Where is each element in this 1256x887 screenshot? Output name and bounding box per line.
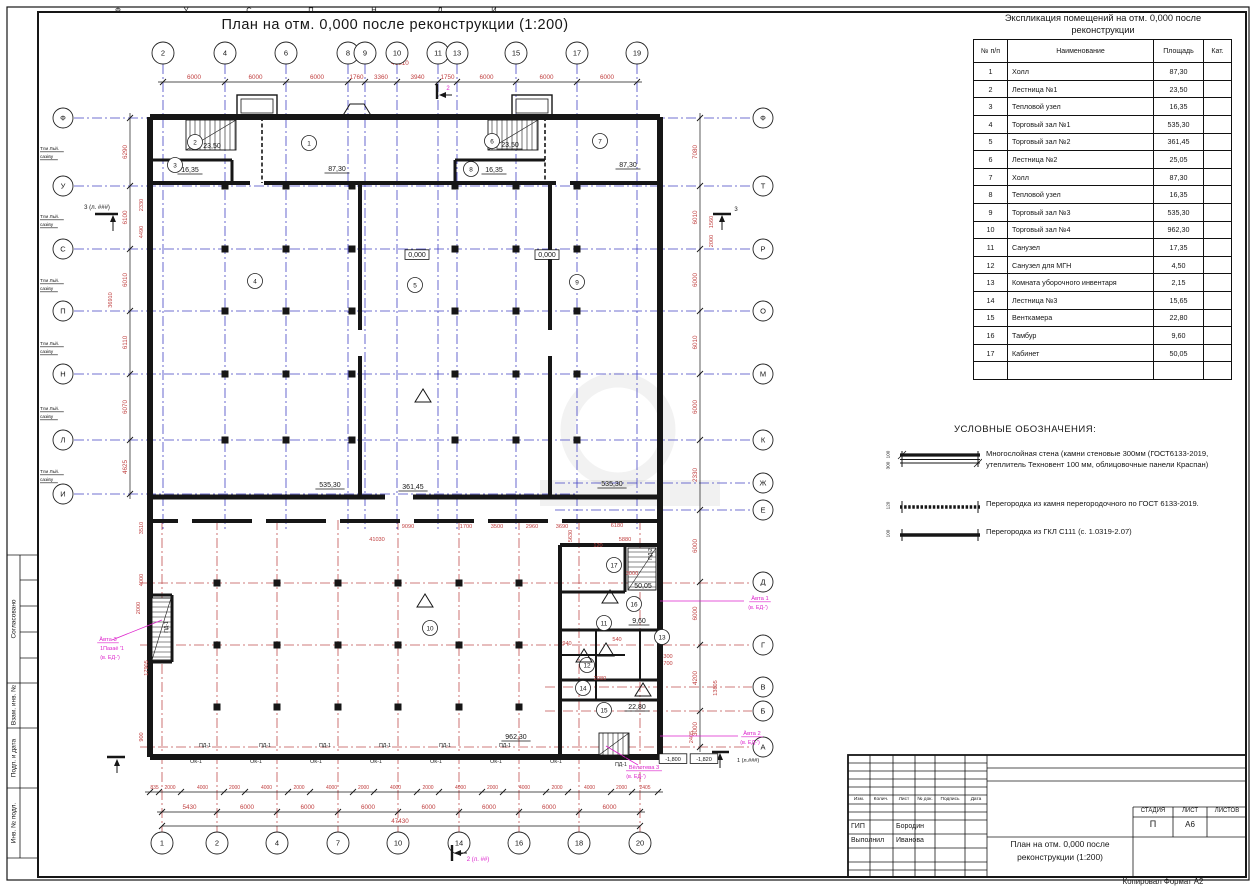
svg-text:940: 940 bbox=[562, 641, 571, 647]
svg-text:ПД-1: ПД-1 bbox=[439, 743, 451, 749]
svg-text:ПД-1: ПД-1 bbox=[319, 743, 331, 749]
tb-col-doc: № док. bbox=[917, 797, 932, 802]
explication-row bbox=[974, 362, 1232, 380]
wall-dim-label: 300 bbox=[885, 462, 890, 470]
tb-col-list: Лист bbox=[899, 797, 909, 802]
explication-cell: 2,15 bbox=[1154, 274, 1204, 292]
svg-text:ПД-1: ПД-1 bbox=[259, 743, 271, 749]
svg-text:6110: 6110 bbox=[122, 335, 129, 349]
svg-text:11: 11 bbox=[601, 620, 608, 627]
svg-text:Д: Д bbox=[760, 578, 765, 587]
explication-cell: 4,50 bbox=[1154, 256, 1204, 274]
svg-text:Е: Е bbox=[760, 506, 765, 515]
svg-text:Ф: Ф bbox=[115, 6, 121, 15]
svg-text:4625: 4625 bbox=[122, 460, 129, 475]
explication-cell bbox=[1204, 98, 1232, 116]
svg-text:сазiву: сазiву bbox=[40, 154, 54, 160]
svg-text:4000: 4000 bbox=[455, 785, 466, 791]
svg-text:Тли Льй.: Тли Льй. bbox=[40, 213, 59, 220]
svg-text:4000: 4000 bbox=[390, 785, 401, 791]
svg-text:15: 15 bbox=[512, 49, 520, 58]
explication-cell: 87,30 bbox=[1154, 168, 1204, 186]
svg-text:И: И bbox=[60, 490, 65, 499]
explication-cell bbox=[1204, 362, 1232, 380]
svg-text:6000: 6000 bbox=[482, 804, 497, 811]
svg-text:4490: 4490 bbox=[139, 226, 145, 238]
explication-title: Экспликация помещений на отм. 0,000 посл… bbox=[973, 13, 1233, 36]
tb-role-executor: Выполнил bbox=[851, 837, 884, 844]
svg-text:4200: 4200 bbox=[692, 671, 699, 686]
tb-sheet-value: А6 bbox=[1185, 820, 1195, 829]
svg-text:2: 2 bbox=[161, 49, 165, 58]
explication-cell: 9,60 bbox=[1154, 327, 1204, 345]
svg-text:1Пазаё '1: 1Пазаё '1 bbox=[100, 646, 124, 652]
svg-text:6010: 6010 bbox=[692, 335, 699, 350]
svg-text:3: 3 bbox=[734, 207, 738, 213]
explication-cell: 5 bbox=[974, 133, 1008, 151]
svg-text:10: 10 bbox=[426, 625, 434, 632]
svg-text:16,35: 16,35 bbox=[181, 167, 199, 174]
explication-cell: 25,05 bbox=[1154, 151, 1204, 169]
tb-sheets-label: ЛИСТОВ bbox=[1215, 808, 1239, 814]
svg-text:300: 300 bbox=[663, 654, 672, 660]
explication-cell: 6 bbox=[974, 151, 1008, 169]
partition-dim-label: 100 bbox=[885, 530, 890, 538]
svg-text:16: 16 bbox=[630, 601, 638, 608]
page-title: План на отм. 0,000 после реконструкции (… bbox=[180, 17, 610, 33]
svg-text:6070: 6070 bbox=[122, 400, 129, 415]
copy-note: Копировал Формат А2 bbox=[1086, 877, 1240, 886]
legend-title: УСЛОВНЫЕ ОБОЗНАЧЕНИЯ: bbox=[954, 424, 1096, 435]
svg-text:900: 900 bbox=[139, 732, 145, 741]
svg-text:6000: 6000 bbox=[600, 74, 615, 81]
explication-cell: 4 bbox=[974, 116, 1008, 134]
svg-text:сазiву: сазiву bbox=[40, 222, 54, 228]
explication-cell: Холл bbox=[1008, 168, 1154, 186]
explication-row: 13Комната уборочного инвентаря2,15 bbox=[974, 274, 1232, 292]
svg-text:А: А bbox=[760, 743, 765, 752]
svg-text:2: 2 bbox=[215, 839, 219, 848]
svg-text:2000: 2000 bbox=[358, 785, 369, 791]
explication-cell: 535,30 bbox=[1154, 116, 1204, 134]
svg-text:9,60: 9,60 bbox=[632, 618, 646, 625]
svg-text:19: 19 bbox=[633, 49, 641, 58]
svg-text:(в. ЕД-'): (в. ЕД-') bbox=[626, 774, 646, 780]
explication-row: 12Санузел для МГН4,50 bbox=[974, 256, 1232, 274]
svg-text:6000: 6000 bbox=[300, 804, 315, 811]
svg-text:Ф: Ф bbox=[60, 114, 66, 123]
svg-text:(в. ЕД-'): (в. ЕД-') bbox=[100, 655, 120, 661]
drawing-sheet: 6000600060001760336039401750600060006000… bbox=[0, 0, 1256, 887]
gkl-partition-symbol bbox=[896, 528, 982, 544]
svg-text:сазiву: сазiву bbox=[40, 414, 54, 420]
explication-cell: 17,35 bbox=[1154, 239, 1204, 257]
svg-text:4000: 4000 bbox=[519, 785, 530, 791]
explication-cell: Тамбур bbox=[1008, 327, 1154, 345]
explication-cell: 962,30 bbox=[1154, 221, 1204, 239]
explication-cell: 535,30 bbox=[1154, 203, 1204, 221]
svg-text:1: 1 bbox=[307, 140, 311, 147]
svg-text:4: 4 bbox=[223, 49, 227, 58]
explication-row: 8Тепловой узел16,35 bbox=[974, 186, 1232, 204]
svg-text:535,30: 535,30 bbox=[601, 481, 623, 488]
svg-text:Л: Л bbox=[61, 436, 66, 445]
svg-text:0,000: 0,000 bbox=[538, 252, 556, 259]
svg-text:2: 2 bbox=[446, 86, 450, 92]
svg-text:3690: 3690 bbox=[556, 524, 568, 530]
explication-cell bbox=[1204, 80, 1232, 98]
svg-text:6010: 6010 bbox=[692, 210, 699, 225]
explication-cell: 16 bbox=[974, 327, 1008, 345]
svg-text:5880: 5880 bbox=[619, 537, 631, 543]
explication-cell: Торговый зал №2 bbox=[1008, 133, 1154, 151]
explication-cell bbox=[1204, 168, 1232, 186]
sidebar-item-vzam-inv: Взам. инв. № bbox=[11, 685, 18, 725]
explication-cell: Лестница №3 bbox=[1008, 291, 1154, 309]
svg-text:11: 11 bbox=[434, 49, 442, 58]
explication-row: 6Лестница №225,05 bbox=[974, 151, 1232, 169]
explication-cell: Лестница №1 bbox=[1008, 80, 1154, 98]
svg-text:ПД-1: ПД-1 bbox=[164, 621, 170, 633]
svg-text:6000: 6000 bbox=[542, 804, 557, 811]
svg-text:4000: 4000 bbox=[197, 785, 208, 791]
svg-text:ОК-2: ОК-2 bbox=[148, 556, 154, 567]
sidebar-item-inv-podl: Инв. № подл. bbox=[11, 803, 18, 844]
explication-cell: Санузел bbox=[1008, 239, 1154, 257]
svg-text:535,30: 535,30 bbox=[319, 482, 341, 489]
explication-cell bbox=[1204, 203, 1232, 221]
svg-text:ПД-1: ПД-1 bbox=[199, 743, 211, 749]
partition-dim-label: 120 bbox=[885, 502, 890, 510]
explication-row: 5Торговый зал №2361,45 bbox=[974, 133, 1232, 151]
explication-cell: 7 bbox=[974, 168, 1008, 186]
svg-text:М: М bbox=[760, 370, 766, 379]
explication-cell: Кабинет bbox=[1008, 344, 1154, 362]
explication-cell bbox=[1204, 239, 1232, 257]
svg-text:Р: Р bbox=[760, 245, 765, 254]
svg-text:Тли Льй.: Тли Льй. bbox=[40, 405, 59, 412]
svg-text:ПД-1: ПД-1 bbox=[615, 762, 627, 768]
svg-text:Тли Льй.: Тли Льй. bbox=[40, 468, 59, 475]
svg-text:10: 10 bbox=[393, 49, 401, 58]
svg-text:540: 540 bbox=[612, 637, 621, 643]
svg-text:6000: 6000 bbox=[187, 74, 202, 81]
explication-cell bbox=[1204, 221, 1232, 239]
svg-text:Т: Т bbox=[761, 182, 766, 191]
svg-text:сазiву: сазiву bbox=[40, 349, 54, 355]
svg-text:18: 18 bbox=[575, 839, 583, 848]
svg-text:835: 835 bbox=[150, 785, 159, 791]
svg-text:16: 16 bbox=[515, 839, 523, 848]
svg-text:2405: 2405 bbox=[689, 731, 695, 743]
svg-text:С: С bbox=[60, 245, 66, 254]
svg-text:ОК-1: ОК-1 bbox=[550, 759, 562, 765]
svg-text:2080: 2080 bbox=[594, 676, 606, 682]
svg-text:2330: 2330 bbox=[139, 199, 145, 211]
svg-text:3: 3 bbox=[173, 162, 177, 169]
svg-text:-1,820: -1,820 bbox=[696, 757, 712, 763]
explication-cell bbox=[1204, 309, 1232, 327]
svg-text:Äвта 1: Äвта 1 bbox=[751, 595, 768, 602]
svg-text:50,05: 50,05 bbox=[634, 583, 652, 590]
svg-text:8: 8 bbox=[469, 166, 473, 173]
stone-partition-symbol bbox=[896, 500, 982, 516]
svg-text:1750: 1750 bbox=[440, 74, 455, 81]
svg-text:Н: Н bbox=[371, 6, 376, 15]
svg-text:Л: Л bbox=[438, 6, 443, 15]
svg-text:2000: 2000 bbox=[709, 235, 715, 247]
svg-text:6180: 6180 bbox=[611, 523, 623, 529]
svg-text:6: 6 bbox=[490, 138, 494, 145]
svg-text:ОК-1: ОК-1 bbox=[250, 759, 262, 765]
svg-text:2000: 2000 bbox=[164, 785, 175, 791]
wall-dim-label: 100 bbox=[885, 451, 890, 459]
explication-cell bbox=[1204, 344, 1232, 362]
explication-cell bbox=[1204, 151, 1232, 169]
tb-doc-title: План на отм. 0,000 после реконструкции (… bbox=[990, 838, 1130, 864]
svg-text:ПД-2: ПД-2 bbox=[648, 548, 654, 560]
svg-text:3000: 3000 bbox=[626, 571, 638, 577]
svg-text:4000: 4000 bbox=[261, 785, 272, 791]
svg-text:6290: 6290 bbox=[122, 145, 129, 160]
svg-text:2000: 2000 bbox=[293, 785, 304, 791]
svg-text:Ф: Ф bbox=[760, 114, 766, 123]
explication-cell: 12 bbox=[974, 256, 1008, 274]
svg-text:Тли Льй.: Тли Льй. bbox=[40, 340, 59, 347]
explication-table: Экспликация помещений на отм. 0,000 посл… bbox=[973, 13, 1233, 380]
explication-cell bbox=[1204, 133, 1232, 151]
tb-name-executor: Иванова bbox=[896, 837, 924, 844]
explication-cell: 16,35 bbox=[1154, 186, 1204, 204]
svg-text:23,50: 23,50 bbox=[203, 143, 221, 150]
explication-cell: 361,45 bbox=[1154, 133, 1204, 151]
svg-text:Вёлотева 3: Вёлотева 3 bbox=[629, 765, 660, 771]
svg-text:ОК-1: ОК-1 bbox=[370, 759, 382, 765]
svg-text:5: 5 bbox=[413, 282, 417, 289]
svg-text:7: 7 bbox=[598, 138, 602, 145]
svg-text:4000: 4000 bbox=[326, 785, 337, 791]
svg-text:2000: 2000 bbox=[229, 785, 240, 791]
svg-text:87,30: 87,30 bbox=[328, 166, 346, 173]
svg-text:36910: 36910 bbox=[108, 292, 114, 308]
explication-cell bbox=[1204, 327, 1232, 345]
explication-cell: Торговый зал №1 bbox=[1008, 116, 1154, 134]
tb-role-gip: ГИП bbox=[851, 823, 865, 830]
svg-text:ОК-1: ОК-1 bbox=[310, 759, 322, 765]
svg-text:2960: 2960 bbox=[526, 524, 538, 530]
svg-text:2000: 2000 bbox=[551, 785, 562, 791]
explication-cell bbox=[1204, 274, 1232, 292]
svg-text:9090: 9090 bbox=[402, 524, 414, 530]
svg-text:сазiву: сазiву bbox=[40, 286, 54, 292]
svg-text:О: О bbox=[760, 307, 766, 316]
explication-cell: 17 bbox=[974, 344, 1008, 362]
explication-cell: 1 bbox=[974, 63, 1008, 81]
explication-row: 2Лестница №123,50 bbox=[974, 80, 1232, 98]
svg-text:17: 17 bbox=[573, 49, 581, 58]
explication-row: 1Холл87,30 bbox=[974, 63, 1232, 81]
svg-text:3 (л. ###): 3 (л. ###) bbox=[84, 205, 110, 211]
explication-row: 16Тамбур9,60 bbox=[974, 327, 1232, 345]
svg-text:(в. ЕД-'): (в. ЕД-') bbox=[740, 740, 760, 746]
explication-cell: 10 bbox=[974, 221, 1008, 239]
svg-text:С: С bbox=[246, 6, 252, 15]
explication-cell: 14 bbox=[974, 291, 1008, 309]
svg-text:Ж: Ж bbox=[760, 479, 767, 488]
svg-text:16,35: 16,35 bbox=[485, 167, 503, 174]
svg-text:47430: 47430 bbox=[391, 818, 409, 825]
svg-text:6000: 6000 bbox=[692, 273, 699, 288]
svg-text:У: У bbox=[184, 6, 189, 15]
svg-text:(в. ЕД-'): (в. ЕД-') bbox=[748, 605, 768, 611]
svg-text:20: 20 bbox=[636, 839, 644, 848]
explication-header-row: № п/п Наименование Площадь Кат. bbox=[974, 40, 1232, 63]
svg-text:962,30: 962,30 bbox=[505, 734, 527, 741]
svg-text:7: 7 bbox=[336, 839, 340, 848]
tb-col-podpis: Подпись bbox=[941, 797, 960, 802]
svg-text:9: 9 bbox=[363, 49, 367, 58]
svg-text:9: 9 bbox=[575, 279, 579, 286]
svg-text:2000: 2000 bbox=[422, 785, 433, 791]
svg-text:Н: Н bbox=[60, 370, 65, 379]
explication-cell bbox=[974, 362, 1008, 380]
legend-label: Перегородка из камня перегородочного по … bbox=[986, 499, 1244, 510]
explication-cell: 22,80 bbox=[1154, 309, 1204, 327]
explication-cell: 3 bbox=[974, 98, 1008, 116]
explication-cell: 15 bbox=[974, 309, 1008, 327]
svg-text:6000: 6000 bbox=[421, 804, 436, 811]
svg-text:6: 6 bbox=[284, 49, 288, 58]
explication-row: 7Холл87,30 bbox=[974, 168, 1232, 186]
svg-text:Б: Б bbox=[761, 707, 766, 716]
svg-text:17: 17 bbox=[610, 562, 618, 569]
svg-text:6000: 6000 bbox=[240, 804, 255, 811]
explication-cell: Санузел для МГН bbox=[1008, 256, 1154, 274]
svg-text:Тли Льй.: Тли Льй. bbox=[40, 145, 59, 152]
svg-text:6000: 6000 bbox=[361, 804, 376, 811]
legend-label: Перегородка из ГКЛ С111 (с. 1.0319-2.07) bbox=[986, 527, 1244, 538]
explication-row: 9Торговый зал №3535,30 bbox=[974, 203, 1232, 221]
explication-cell bbox=[1204, 116, 1232, 134]
svg-text:41030: 41030 bbox=[369, 537, 385, 543]
svg-text:6000: 6000 bbox=[248, 74, 263, 81]
svg-text:Г: Г bbox=[761, 641, 765, 650]
svg-text:22,80: 22,80 bbox=[628, 704, 646, 711]
explication-cell: Холл bbox=[1008, 63, 1154, 81]
svg-text:2405: 2405 bbox=[639, 785, 650, 791]
svg-text:В: В bbox=[760, 683, 765, 692]
svg-text:П: П bbox=[308, 6, 313, 15]
svg-text:3510: 3510 bbox=[139, 522, 145, 534]
svg-text:ПД-1: ПД-1 bbox=[499, 743, 511, 749]
tb-col-data: Дата bbox=[971, 797, 982, 802]
svg-text:сазiву: сазiву bbox=[40, 477, 54, 483]
svg-text:5430: 5430 bbox=[182, 804, 197, 811]
multilayer-wall-symbol bbox=[896, 450, 982, 472]
explication-cell: 16,35 bbox=[1154, 98, 1204, 116]
svg-text:1560: 1560 bbox=[709, 216, 715, 228]
svg-text:7080: 7080 bbox=[692, 145, 699, 160]
explication-cell bbox=[1204, 63, 1232, 81]
svg-text:2: 2 bbox=[193, 139, 197, 146]
svg-text:0,000: 0,000 bbox=[408, 252, 426, 259]
svg-text:14: 14 bbox=[579, 685, 587, 692]
explication-row: 17Кабинет50,05 bbox=[974, 344, 1232, 362]
sidebar-item-podp-data: Подп. и дата bbox=[11, 739, 18, 777]
explication-cell: Лестница №2 bbox=[1008, 151, 1154, 169]
svg-text:К: К bbox=[761, 436, 766, 445]
svg-text:6000: 6000 bbox=[692, 539, 699, 554]
svg-text:2330: 2330 bbox=[692, 468, 699, 483]
svg-text:3500: 3500 bbox=[491, 524, 503, 530]
explication-grid: № п/п Наименование Площадь Кат. 1Холл87,… bbox=[973, 39, 1232, 380]
svg-text:-1,800: -1,800 bbox=[665, 757, 681, 763]
svg-text:ОК-1: ОК-1 bbox=[430, 759, 442, 765]
svg-text:6000: 6000 bbox=[539, 74, 554, 81]
svg-text:6000: 6000 bbox=[602, 804, 617, 811]
legend-label: Многослойная стена (камни стеновые 300мм… bbox=[986, 449, 1244, 470]
svg-text:ПД-1: ПД-1 bbox=[379, 743, 391, 749]
explication-cell: Комната уборочного инвентаря bbox=[1008, 274, 1154, 292]
explication-cell: 11 bbox=[974, 239, 1008, 257]
tb-stage-label: СТАДИЯ bbox=[1141, 808, 1166, 814]
svg-text:3940: 3940 bbox=[410, 74, 425, 81]
svg-text:10: 10 bbox=[394, 839, 402, 848]
svg-text:1: 1 bbox=[160, 839, 164, 848]
svg-text:14: 14 bbox=[455, 839, 463, 848]
explication-cell bbox=[1008, 362, 1154, 380]
svg-text:П: П bbox=[60, 307, 65, 316]
svg-text:2000: 2000 bbox=[487, 785, 498, 791]
explication-cell bbox=[1204, 256, 1232, 274]
tb-stage-value: П bbox=[1150, 819, 1156, 829]
svg-text:700: 700 bbox=[663, 661, 672, 667]
explication-cell: 13 bbox=[974, 274, 1008, 292]
explication-row: 15Венткамера22,80 bbox=[974, 309, 1232, 327]
svg-text:6100: 6100 bbox=[122, 210, 129, 225]
explication-cell: 23,50 bbox=[1154, 80, 1204, 98]
svg-text:120: 120 bbox=[593, 543, 602, 549]
explication-cell: 2 bbox=[974, 80, 1008, 98]
svg-text:1700: 1700 bbox=[460, 524, 472, 530]
svg-text:13: 13 bbox=[453, 49, 461, 58]
svg-text:2000: 2000 bbox=[616, 785, 627, 791]
explication-cell bbox=[1204, 291, 1232, 309]
svg-text:4: 4 bbox=[275, 839, 279, 848]
explication-cell: 9 bbox=[974, 203, 1008, 221]
explication-cell: 15,65 bbox=[1154, 291, 1204, 309]
svg-text:6010: 6010 bbox=[122, 273, 129, 288]
svg-text:3360: 3360 bbox=[374, 74, 389, 81]
explication-cell: 50,05 bbox=[1154, 344, 1204, 362]
svg-text:Äвта 3: Äвта 3 bbox=[99, 636, 116, 643]
svg-text:15: 15 bbox=[600, 707, 608, 714]
explication-cell: Тепловой узел bbox=[1008, 186, 1154, 204]
svg-text:23,50: 23,50 bbox=[501, 142, 519, 149]
tb-col-izm: Изм. bbox=[854, 797, 864, 802]
svg-text:5630: 5630 bbox=[568, 530, 574, 542]
explication-row: 14Лестница №315,65 bbox=[974, 291, 1232, 309]
explication-cell: Торговый зал №4 bbox=[1008, 221, 1154, 239]
explication-cell: 87,30 bbox=[1154, 63, 1204, 81]
svg-text:6000: 6000 bbox=[310, 74, 325, 81]
svg-text:8: 8 bbox=[346, 49, 350, 58]
svg-text:2000: 2000 bbox=[136, 602, 142, 614]
svg-text:У: У bbox=[61, 182, 66, 191]
svg-text:4: 4 bbox=[253, 278, 257, 285]
tb-name-gip: Бородин bbox=[896, 823, 924, 830]
explication-cell: 8 bbox=[974, 186, 1008, 204]
